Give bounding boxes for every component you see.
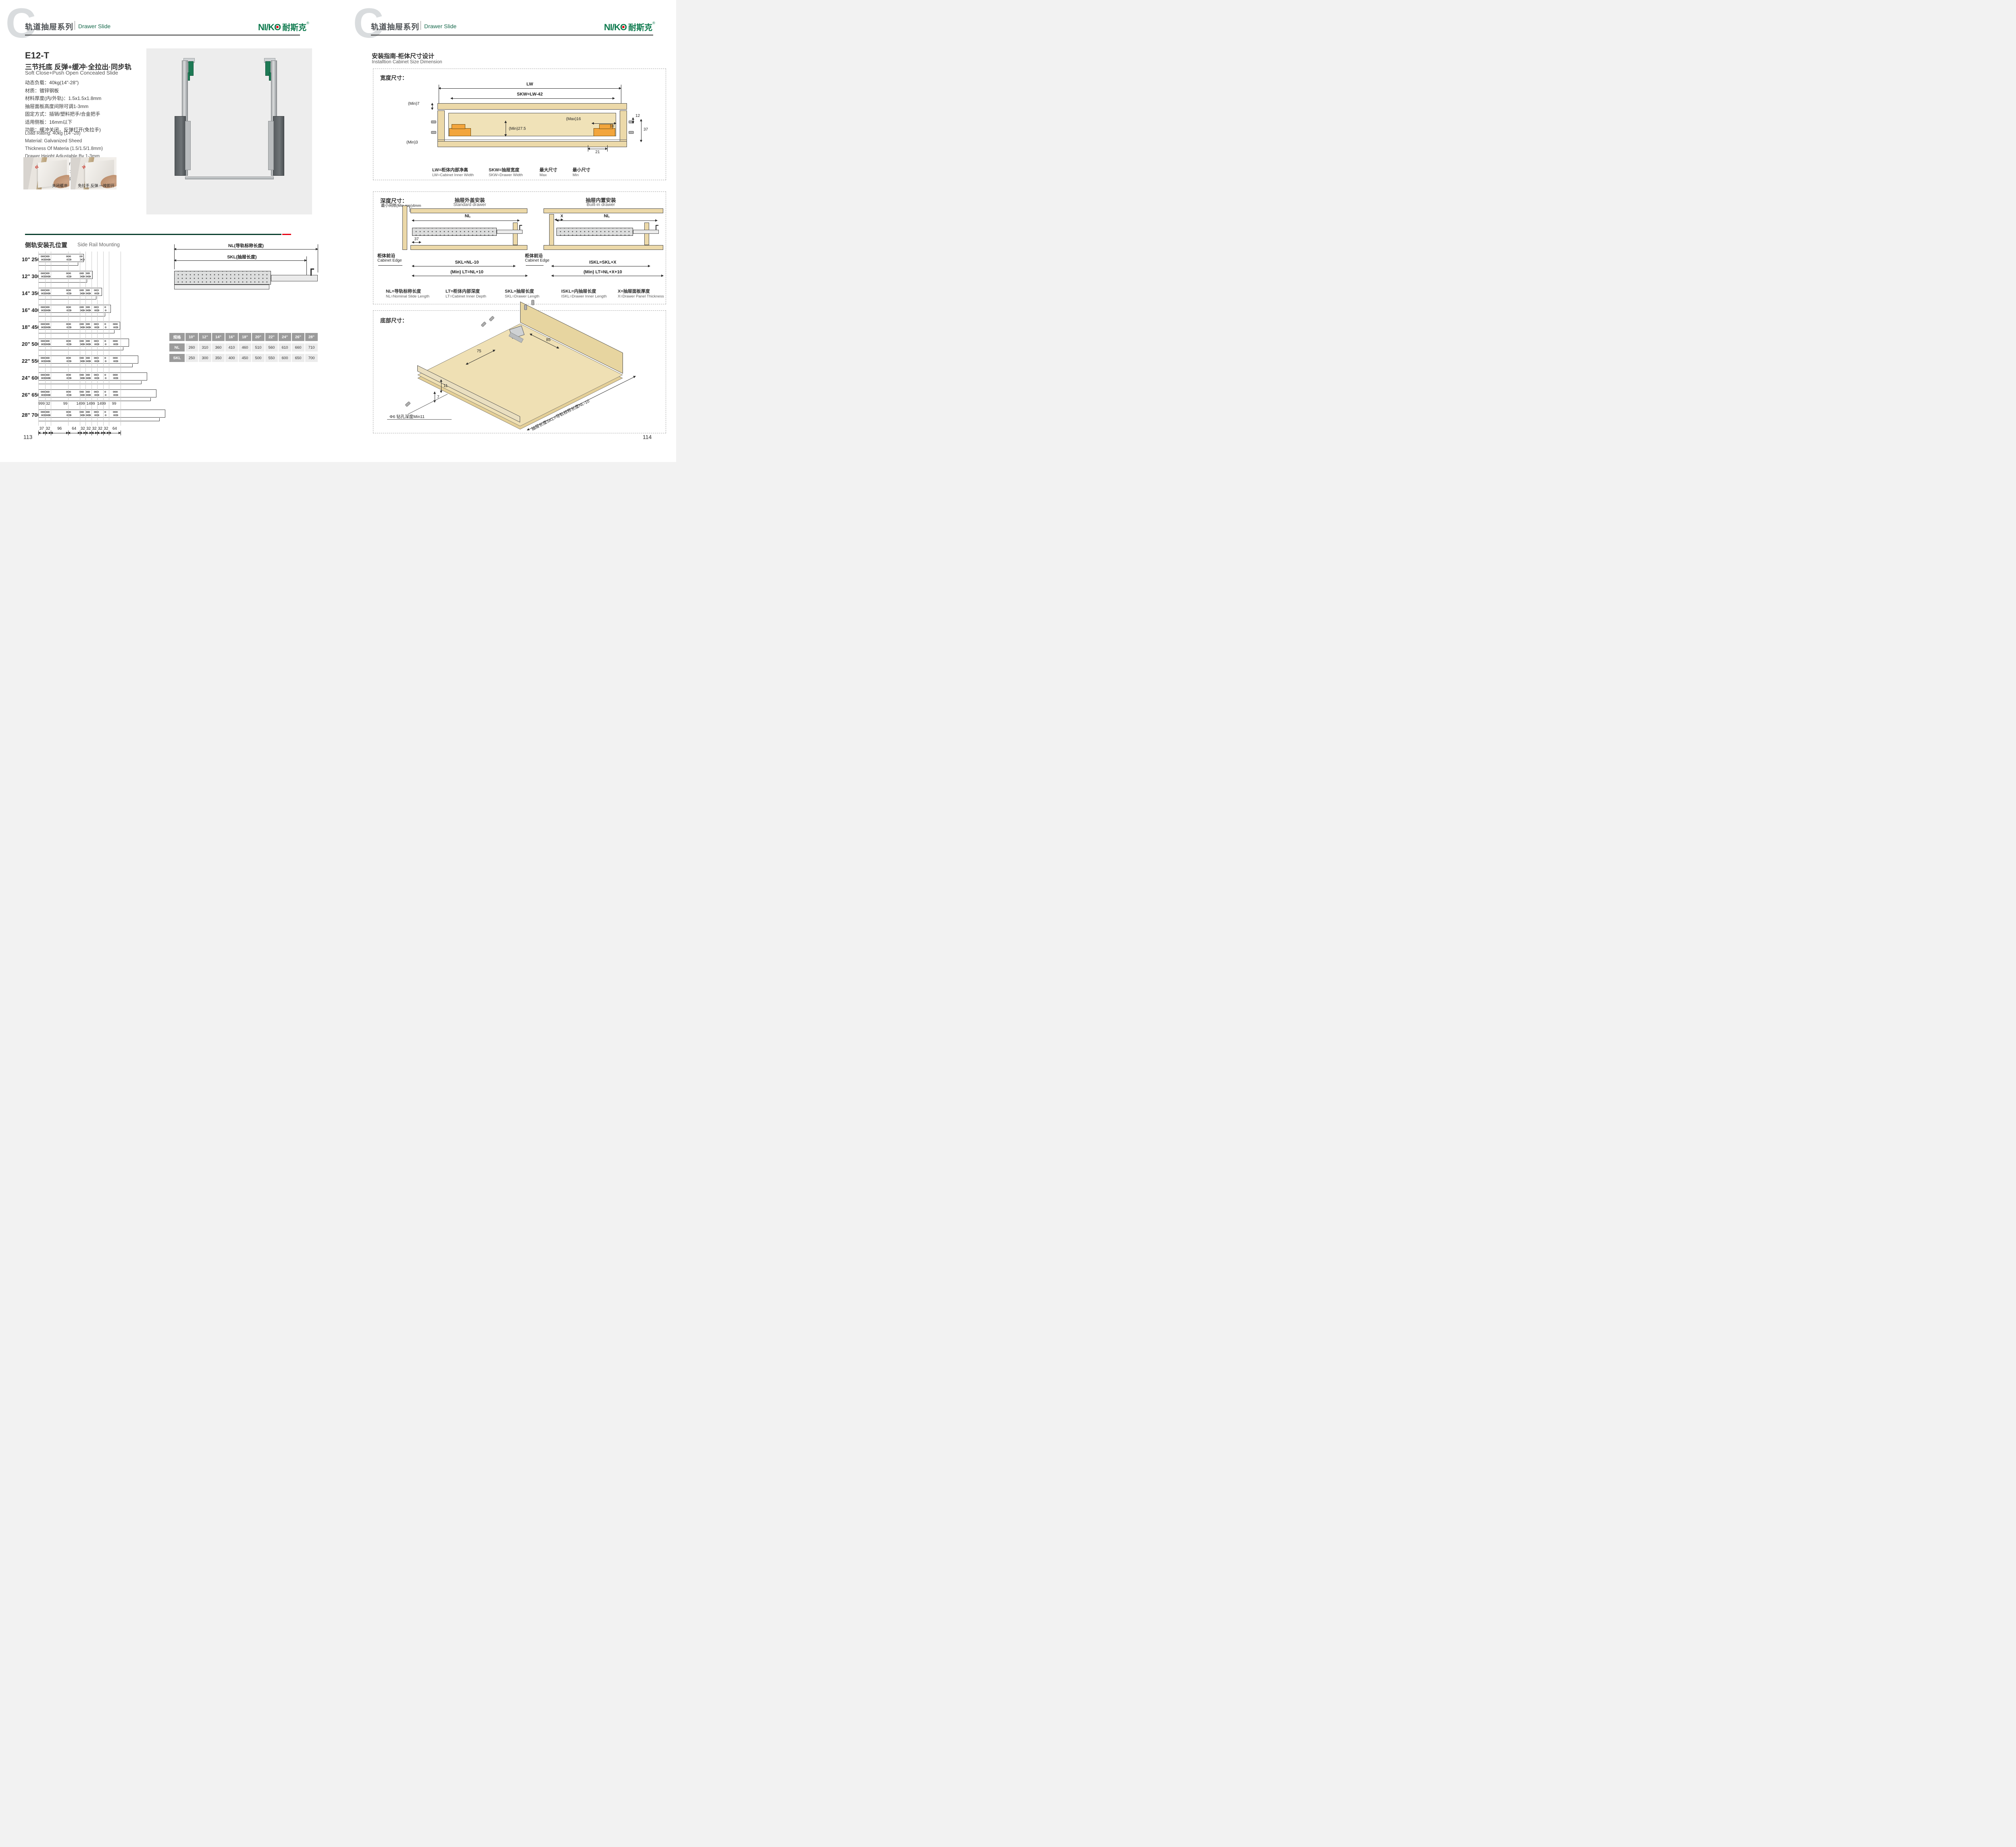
table-value-cell: 510 (252, 343, 264, 352)
side-rail-section-title-cn: 侧轨安装孔位置 (25, 241, 67, 249)
cabinet-edge-en-builtin: Cabinet Edge (525, 258, 550, 263)
dim-tick (92, 431, 92, 435)
rail-hole (67, 360, 68, 362)
table-header-cell: 22" (265, 333, 278, 341)
screw-icon (531, 300, 534, 305)
install-guide-title-cn: 安装指南-柜体尺寸设计 (372, 52, 434, 60)
header-divider-right (421, 21, 421, 30)
hole-guide-line (45, 252, 46, 426)
pitch-dim-label: 1499 (97, 401, 106, 406)
bottom-dim-arrow (51, 433, 68, 433)
rail-hole (113, 340, 115, 342)
rail-hole (48, 306, 50, 308)
screw-icon (629, 131, 634, 134)
feature-photo-push-open: » 免拉手 反弹 一按即开 (71, 157, 117, 189)
table-value-cell: 410 (225, 343, 238, 352)
logo-cn-left: 耐斯克 (282, 23, 306, 32)
hole-guide-line (38, 252, 39, 426)
rail-drawing (38, 339, 129, 347)
dim21-label: 21 (595, 150, 600, 154)
table-header-cell: 26" (292, 333, 304, 341)
rail-inner-drawing (38, 262, 78, 266)
dim-tick (85, 431, 86, 435)
table-value-cell: 600 (279, 354, 291, 362)
slide-inner-member (271, 275, 318, 281)
dim-tick (80, 431, 80, 435)
rail-hole (66, 306, 68, 308)
rail-hole (70, 394, 71, 396)
feature-photo-soft-close: « 关闭缓冲 (23, 157, 69, 189)
rail-hole (82, 340, 84, 342)
slide-hardware-left (449, 128, 471, 136)
rail-hole (113, 374, 115, 376)
table-value-cell: 360 (212, 343, 225, 352)
rail-hole (98, 310, 99, 311)
rail-hole (82, 357, 84, 359)
min3-label: (Min)3 (406, 140, 418, 145)
rail-hole (67, 394, 68, 396)
logo-cn-right: 耐斯克 (628, 23, 652, 32)
rail-hole (116, 340, 118, 342)
rail-hole (104, 306, 106, 308)
nl-label-std: NL (465, 214, 471, 218)
rail-hole (113, 414, 115, 416)
depth-legend-en: ISKL=Drawer Inner Length (561, 294, 607, 299)
table-value-cell: 250 (185, 354, 198, 362)
rail-hole (116, 374, 118, 376)
dim-tick (45, 431, 46, 435)
depth-legend-en: X=Drawer Panel Thickness (618, 294, 664, 299)
max16-arrow (592, 123, 616, 124)
cabinet-front-edge-board (402, 206, 407, 250)
rail-hole (69, 306, 71, 308)
bottom-dim-arrow (38, 433, 45, 433)
rail-inner-drawing (38, 381, 142, 384)
rail-hole (104, 391, 106, 393)
min-gap-label: 最小间隙(Min gap)4mm (381, 202, 421, 208)
table-row-label: SKL (169, 354, 185, 362)
rail-hole (82, 306, 84, 308)
rail-drawing (38, 288, 102, 296)
rail-hole (116, 323, 118, 325)
rail-hole (113, 323, 115, 325)
section-divider-red (282, 234, 291, 235)
skw-label: SKW=LW-42 (517, 92, 543, 97)
rail-hole (81, 259, 85, 260)
rail-hole (48, 374, 50, 376)
header-rule-right (371, 35, 653, 35)
rail-hole (98, 327, 99, 328)
lt-std-label: (Min) LT=NL+10 (450, 270, 483, 275)
rail-hole (104, 323, 106, 325)
rail-hole (113, 360, 115, 362)
rail-size-label: 18" 450 (22, 324, 40, 330)
rail-inner-drawing (38, 313, 105, 316)
rail-hole (69, 323, 71, 325)
rail-hole (67, 327, 68, 328)
rail-hole (69, 272, 71, 274)
hole-guide-line (85, 252, 86, 426)
cabinet-top-board (410, 208, 527, 213)
bottom-dim-label: 32 (86, 426, 91, 431)
slide-housing (175, 116, 186, 176)
nl-arrow-std (412, 220, 519, 221)
width-legend-en: LW=Cabinet Inner Width (432, 173, 474, 177)
rail-hole (105, 343, 106, 345)
rail-hole (116, 391, 118, 393)
slide-inner (185, 121, 191, 170)
cabinet-right-board (620, 110, 627, 142)
catalog-spread: C 轨道抽屉系列 Drawer Slide NI/KO耐斯克® E12-T 三节… (0, 0, 676, 462)
rail-hole (69, 256, 71, 257)
drawer-box (448, 113, 616, 136)
cabinet-edge-en-std: Cabinet Edge (377, 258, 402, 263)
rail-hole (69, 411, 71, 413)
width-legend-cn: 最小尺寸 (573, 166, 590, 173)
rail-hole (66, 340, 68, 342)
rail-hole (113, 327, 115, 328)
rail-inner-drawing (38, 296, 96, 300)
side-rail-section-title-en: Side Rail Mounting (77, 242, 120, 248)
cabinet-bottom-board (544, 245, 663, 250)
section-divider-green (25, 234, 281, 235)
nl-dim-arrow (174, 249, 318, 250)
lt-builtin-label: (Min) LT=NL+X+10 (583, 270, 622, 275)
x-label: X (560, 214, 563, 218)
rail-hole (48, 340, 50, 342)
bottom-dim-arrow (45, 433, 51, 433)
spec-line-cn: 材质：镀锌钢板 (25, 87, 101, 95)
bottom-dim-arrow (109, 433, 121, 433)
spec-line-en: Material: Galvanized Sheed (25, 137, 110, 145)
rail-size-label: 24" 600 (22, 375, 40, 381)
slide-side-view-builtin (556, 228, 633, 236)
rail-hole (66, 323, 68, 325)
slide-inner-member-std (497, 230, 523, 234)
rail-hole (88, 374, 90, 376)
table-header-cell: 18" (239, 333, 251, 341)
table-value-cell: 310 (199, 343, 211, 352)
table-row-label: NL (169, 343, 185, 352)
rail-hole (48, 272, 50, 274)
dim75-label: 75 (477, 349, 481, 354)
brand-logo-right: NI/KO耐斯克® (604, 21, 655, 33)
rail-hole (70, 414, 71, 416)
photo-caption: 关闭缓冲 (52, 183, 67, 188)
rail-hole (48, 357, 50, 359)
hole-guide-line (97, 252, 98, 426)
rail-hole (117, 360, 118, 362)
nl-label-builtin: NL (604, 214, 610, 218)
builtin-drawer-title-en: Built-in drawer (587, 202, 615, 207)
bottom-dim-arrow (85, 433, 91, 433)
rail-hole (66, 374, 68, 376)
rail-hole (88, 357, 90, 359)
product-photo (146, 48, 312, 214)
rail-hole (104, 411, 106, 413)
cabinet-bottom-board (410, 245, 527, 250)
header-divider-left (75, 21, 75, 30)
rail-hole (88, 272, 90, 274)
rail-hole (98, 343, 99, 345)
table-header-cell: 20" (252, 333, 264, 341)
install-guide-title-en: Installtion Cabinet Size Dimension (372, 60, 442, 64)
cabinet-bottom-board (437, 141, 627, 147)
depth-legend-en: SKL=Drawer Length (505, 294, 539, 299)
rail-size-label: 10" 250 (22, 256, 40, 262)
series-title-cn-left: 轨道抽屉系列 (25, 21, 73, 32)
bottom-dim-label: 32 (104, 426, 108, 431)
table-value-cell: 710 (305, 343, 318, 352)
slide-side-view (174, 271, 271, 285)
rail-size-label: 28" 700 (22, 412, 40, 418)
rail-hole (67, 377, 68, 379)
rail-hole (98, 293, 99, 294)
rail-size-label: 12" 300 (22, 273, 40, 279)
rail-hole (104, 340, 106, 342)
min275-label: (Min)27.5 (509, 127, 526, 131)
rail-hole (48, 323, 50, 325)
rail-hole (67, 293, 68, 294)
pitch-dim-label: 1499 (76, 401, 85, 406)
skw-arrow (451, 98, 614, 99)
rail-hole (66, 272, 68, 274)
rail-hole (82, 289, 84, 291)
lt-builtin-arrow (552, 276, 663, 276)
pitch-dim-label: 1499 (86, 401, 95, 406)
screw-icon (431, 131, 436, 134)
brand-logo-left: NI/KO耐斯克® (258, 21, 309, 33)
rail-size-label: 22" 550 (22, 358, 40, 364)
rail-drawing (38, 305, 111, 313)
rail-hole (70, 310, 71, 311)
width-legend-cn: LW=柜体内部净高 (432, 166, 468, 173)
photo-caption: 免拉手 反弹 一按即开 (78, 183, 115, 188)
slide-inner-member-builtin (633, 230, 659, 234)
series-title-en-left: Drawer Slide (78, 23, 110, 29)
bottom-dim-arrow (92, 433, 97, 433)
rail-hole (69, 340, 71, 342)
rail-hole (69, 289, 71, 291)
bottom-dim-arrow (68, 433, 80, 433)
iskl-label: ISKL=SKL+X (589, 260, 616, 265)
bottom-section-title: 底部尺寸： (380, 316, 408, 324)
table-value-cell: 450 (239, 354, 251, 362)
table-value-cell: 350 (212, 354, 225, 362)
logo-registered-icon: ® (306, 21, 309, 25)
pitch-dim-label: 99 (63, 401, 68, 406)
rail-hole (88, 411, 90, 413)
lw-label: LW (527, 82, 533, 87)
logo-latin-left: NI/KO (258, 22, 281, 32)
dim37-std-arrow (412, 242, 421, 243)
page-number-right: 114 (643, 434, 652, 440)
rail-hole (104, 357, 106, 359)
depth-legend-en: NL=Nominal Slide Length (386, 294, 429, 299)
spec-line-cn: 材料厚度(内/外轨)：1.5x1.5x1.8mm (25, 95, 101, 103)
rail-hole (66, 256, 68, 257)
nl-dim-label: NL(导轨标称长度) (228, 242, 264, 249)
bottom-dim-label: 37 (40, 426, 44, 431)
rail-size-label: 16" 400 (22, 307, 40, 313)
sync-rod (185, 177, 274, 179)
table-header-cell: 10" (185, 333, 198, 341)
hole-guide-line (103, 252, 104, 426)
rail-hole (117, 377, 118, 379)
hole-guide-line (92, 252, 92, 426)
bottom-dim-label: 32 (98, 426, 102, 431)
rail-hole (105, 414, 106, 416)
rail-hole (98, 414, 99, 416)
header-rule-left (25, 35, 300, 35)
cabinet-top-board (437, 103, 627, 110)
drawer-back-panel (644, 223, 649, 245)
rail-hole (70, 259, 71, 260)
rail-hole (48, 391, 50, 393)
lt-std-arrow (412, 276, 527, 276)
dim21-arrow (588, 149, 607, 149)
series-title-en-right: Drawer Slide (424, 23, 456, 29)
logo-latin-right: NI/KO (604, 22, 627, 32)
table-value-cell: 260 (185, 343, 198, 352)
rail-hole (67, 276, 68, 277)
rail-hole (117, 327, 118, 328)
table-value-cell: 400 (225, 354, 238, 362)
rail-hole (88, 306, 90, 308)
bottom-dim-label: 32 (92, 426, 96, 431)
rail-hole (113, 411, 115, 413)
rail-hole (98, 377, 99, 379)
rail-hole (70, 276, 71, 277)
dim-tick (68, 431, 69, 435)
width-section-title: 宽度尺寸： (380, 73, 408, 81)
rail-hole (105, 394, 106, 396)
rail-hole (82, 411, 84, 413)
depth-legend-cn: X=抽屉面板厚度 (618, 288, 650, 294)
rail-hole (113, 377, 115, 379)
table-header-cell: 16" (225, 333, 238, 341)
width-legend-en: SKW=Drawer Width (489, 173, 523, 177)
rail-hole (88, 391, 90, 393)
rail-hole (70, 377, 71, 379)
rail-hole (70, 327, 71, 328)
rail-hole (113, 343, 115, 345)
table-header-cell: 28" (305, 333, 318, 341)
cabinet-left-board (437, 110, 445, 142)
bottom-dim-label: 96 (57, 426, 62, 431)
spec-line-en: Load Rating: 40kg (14"-28) (25, 130, 110, 137)
min7-label: (Min)7 (408, 102, 419, 106)
bottom-dim-label: 32 (81, 426, 85, 431)
table-value-cell: 460 (239, 343, 251, 352)
dim85-label: 85 (546, 338, 550, 342)
rail-drawing (38, 356, 138, 364)
dim11-label: 11 (444, 384, 448, 388)
hole-guide-line (80, 252, 80, 426)
table-value-cell: 660 (292, 343, 304, 352)
rail-hole (117, 394, 118, 396)
rail-hole (88, 340, 90, 342)
rail-hole (67, 343, 68, 345)
rail-hole (82, 323, 84, 325)
rail-hole (70, 360, 71, 362)
table-value-cell: 700 (305, 354, 318, 362)
slide-outer-base (174, 285, 269, 289)
skl-dim-arrow (174, 260, 306, 261)
skl-eq-arrow (412, 266, 515, 266)
rail-hole (48, 411, 50, 413)
pitch-dim-label: 32 (46, 401, 50, 406)
rail-hole (66, 289, 68, 291)
dim12-label: 12 (635, 114, 640, 118)
dim37-label: 37 (644, 127, 648, 132)
spec-line-cn: 动态负载：40kg(14"-28") (25, 79, 101, 87)
rail-hole (81, 256, 83, 257)
table-header-cell: 14" (212, 333, 225, 341)
skl-eq-label: SKL=NL-10 (455, 260, 479, 265)
rail-hole (113, 357, 115, 359)
rail-hole (116, 357, 118, 359)
spec-line-en: Thickness Of Materia (1.5/1.5/1.8mm) (25, 145, 110, 153)
rail-drawing (38, 372, 147, 381)
table-value-cell: 500 (252, 354, 264, 362)
rail-hole (66, 411, 68, 413)
rail-hole (117, 414, 118, 416)
rail-hole (48, 256, 50, 257)
bottom-dim-label: 64 (112, 426, 117, 431)
skl-dim-label: SKL(抽屉长度) (227, 254, 256, 260)
standard-drawer-title-en: Standard drawer (453, 202, 486, 207)
rail-hole (105, 360, 106, 362)
hole-guide-line (109, 252, 109, 426)
width-legend-cn: 最大尺寸 (539, 166, 557, 173)
rail-size-label: 14" 350 (22, 290, 40, 296)
spec-line-cn: 固定方式：插销/塑料把手/合金把手 (25, 110, 101, 119)
dim10-label: 10 (610, 124, 614, 129)
page-number-left: 113 (23, 434, 32, 440)
bottom-dim-arrow (80, 433, 85, 433)
pitch-dim-label: 999 (38, 401, 45, 406)
drawer-back-panel (513, 223, 518, 245)
spec-line-cn: 适用侧板：16mm以下 (25, 119, 101, 127)
dim-tick (97, 431, 98, 435)
product-subtitle-en: Soft Close+Push Open Concealed Slide (25, 70, 118, 76)
rail-hole (70, 343, 71, 345)
dim-tick (103, 431, 104, 435)
slide-hardware-left-top (452, 124, 465, 129)
rail-drawing (38, 410, 165, 418)
slide-inner (268, 121, 274, 170)
slide-hardware-right (594, 128, 615, 136)
table-value-cell: 650 (292, 354, 304, 362)
hole-guide-line (51, 252, 51, 426)
specs-cn-block: 动态负载：40kg(14"-28")材质：镀锌钢板材料厚度(内/外轨)：1.5x… (25, 79, 101, 134)
depth-legend-cn: SKL=抽屉长度 (505, 288, 534, 294)
width-legend-en: Max (539, 173, 547, 177)
rail-hole (69, 374, 71, 376)
cabinet-top-board (544, 208, 663, 213)
rail-hole (82, 374, 84, 376)
rail-hole (82, 391, 84, 393)
rail-hole (88, 323, 90, 325)
bottom-dim-arrow (103, 433, 109, 433)
rail-hole (117, 343, 118, 345)
rail-size-label: 26" 650 (22, 392, 40, 398)
depth-legend-cn: NL=导轨标称长度 (386, 288, 421, 294)
model-code: E12-T (25, 50, 49, 61)
drill-note-label: Φ6 钻孔深度Min11 (389, 414, 425, 420)
rail-hole (105, 327, 106, 328)
